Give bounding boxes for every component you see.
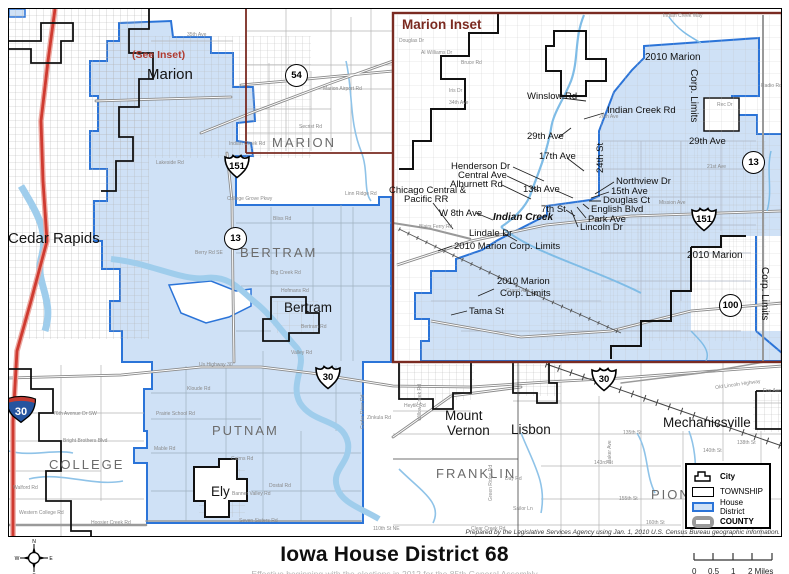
main-map-label-indian-creek-rd: Indian Creek Rd — [229, 142, 265, 147]
inset-label-mission-ave: Mission Ave — [659, 201, 686, 206]
main-map-label-prairie-school-rd: Prairie School Rd — [156, 412, 195, 417]
main-map-label-cedar-rapids: Cedar Rapids — [8, 231, 100, 247]
main-map-label-110th-st-ne: 110th St NE — [373, 527, 400, 532]
inset-label-29th-ave: 29th Ave — [527, 132, 564, 142]
main-map-label-mable-rd: Mable Rd — [154, 447, 175, 452]
main-map-label-bertram: Bertram — [284, 301, 332, 315]
inset-label-w-8th-ave: W 8th Ave — [439, 209, 482, 219]
main-map-label-college-grove-pkwy: College Grove Pkwy — [227, 197, 272, 202]
main-map-label-155th-st: 155th St — [619, 497, 638, 502]
main-map-label-hoosier-creek-rd: Hoosier Creek Rd — [91, 521, 131, 526]
main-map-label-dostal-rd: Dostal Rd — [269, 484, 291, 489]
main-map-label-marion: Marion — [147, 67, 193, 83]
main-map-label-ely: Ely — [211, 485, 230, 499]
main-map-label-linn-ridge-rd: Linn Ridge Rd — [345, 192, 377, 197]
inset-label-tama-st: Tama St — [469, 307, 504, 317]
main-map-label-western-college-rd: Western College Rd — [19, 511, 64, 516]
main-map-label-sailor-ln: Sailor Ln — [513, 507, 533, 512]
main-map-label-mount: Mount — [445, 409, 483, 423]
inset-label-grand-ave: Grand Ave — [506, 289, 530, 294]
inset-label-indian-creek-way: Indian Creek Way — [663, 14, 703, 19]
inset-label-34th-ave: 34th Ave — [449, 101, 468, 106]
inset-label-lincoln-dr: Lincoln Dr — [580, 223, 623, 233]
main-map-label-green-ridge-rd: Green Ridge Rd — [489, 465, 494, 501]
us-route-shield-30: 30 — [314, 364, 342, 395]
main-map-label-us-highway-30: Us Highway 30 — [199, 363, 233, 368]
scale-label-2-miles: 2 Miles — [748, 567, 773, 574]
main-map-label-135th-st: 135th St — [623, 431, 642, 436]
main-map-label-lakeside-rd: Lakeside Rd — [156, 161, 184, 166]
map-frame: (See Inset)MarionMARIONCedar RapidsBERTR… — [8, 8, 782, 537]
us-route-shield-151: 151 — [223, 153, 251, 184]
us-route-shield-30: 30 — [590, 366, 618, 397]
main-map-label-140th-st: 140th St — [703, 449, 722, 454]
main-map-label-secrist-rd: Secrist Rd — [299, 125, 322, 130]
house-district-swatch — [692, 502, 714, 512]
shield-number: 13 — [230, 233, 241, 244]
us-route-shield-shape: 30 — [590, 366, 618, 392]
us-route-shield-151: 151 — [690, 206, 718, 237]
interstate-route-shield-30: 30 — [8, 393, 38, 429]
legend: City TOWNSHIP House District COUNTY — [685, 463, 771, 529]
inset-label-13th-ave: 13th Ave — [523, 185, 560, 195]
main-map-label-college: COLLEGE — [49, 458, 124, 472]
circle-route-shield-13: 13 — [224, 227, 247, 250]
main-map-label-see-inset: (See Inset) — [132, 50, 185, 61]
map-page: (See Inset)MarionMARIONCedar RapidsBERTR… — [0, 0, 789, 574]
main-map-label-willow-creek-rd: Willow Creek Rd — [418, 384, 423, 421]
legend-item-county: COUNTY — [692, 514, 764, 529]
shield-number: 30 — [15, 406, 27, 418]
inset-label-24th-st: 24th St — [596, 143, 606, 173]
inset-label-26th-ave: 26th Ave — [599, 115, 618, 120]
state-route-shield-shape: 54 — [285, 64, 308, 87]
state-route-shield-shape: 100 — [719, 294, 742, 317]
legend-label-house-district: House District — [720, 498, 764, 516]
inset-label-pacific-rr: Pacific RR — [404, 195, 448, 205]
main-map-label-valley-rd: Valley Rd — [291, 351, 312, 356]
main-map-label-cedar-river-rd: Cedar River Rd — [361, 395, 366, 429]
main-map-label-fox-ave: Fox Ave — [763, 389, 781, 394]
legend-label-county: COUNTY — [720, 517, 754, 526]
inset-label-21st-ave: 21st Ave — [707, 165, 726, 170]
main-map-label-cairns-rd: Cairns Rd — [231, 457, 253, 462]
state-route-shield-shape: 13 — [224, 227, 247, 250]
circle-route-shield-100: 100 — [719, 294, 742, 317]
main-map-label-138th-st: 138th St — [737, 441, 756, 446]
inset-label-17th-ave: 17th Ave — [539, 152, 576, 162]
inset-label-indian-creek: Indian Creek — [493, 213, 553, 224]
main-map-label-bright-brothers-blvd: Bright Brothers Blvd — [63, 439, 107, 444]
inset-label-bruce-rd: Bruce Rd — [461, 61, 482, 66]
main-map-label-lisbon: Lisbon — [511, 423, 551, 437]
main-map-label-baker-ave: Baker Ave — [608, 440, 613, 463]
main-map-label-mechanicsville: Mechanicsville — [663, 416, 751, 430]
main-map-label-day-rd: Day Rd — [505, 477, 522, 482]
inset-label-corp-limits: Corp. Limits — [688, 69, 699, 122]
main-map-label-76th-avenue-dr-sw: 76th Avenue Dr SW — [53, 412, 97, 417]
legend-item-city: City — [692, 469, 764, 484]
main-map-label-walford-rd: Walford Rd — [13, 486, 38, 491]
county-swatch — [692, 516, 714, 528]
main-map-label-berry-rd-se: Berry Rd SE — [195, 251, 223, 256]
inset-label-blairs-ferry-rd: Blairs Ferry Rd — [419, 225, 452, 230]
inset-label-radio-rd: Radio Rd — [761, 84, 782, 89]
main-map-label-35th-ave: 35th Ave — [187, 33, 206, 38]
inset-label-29th-ave: 29th Ave — [689, 137, 726, 147]
shield-number: 100 — [723, 300, 739, 311]
main-map-label-vernon: Vernon — [447, 424, 490, 438]
state-route-shield-shape: 13 — [742, 151, 765, 174]
scale-bar: 0 0.5 1 2 Miles — [686, 548, 781, 574]
main-map-label-marion: MARION — [272, 136, 336, 150]
main-map-label-bertram-rd: Bertram Rd — [301, 325, 327, 330]
inset-label-rec-dr: Rec Dr — [717, 103, 733, 108]
shield-number: 151 — [696, 214, 713, 225]
map-canvas: (See Inset)MarionMARIONCedar RapidsBERTR… — [8, 8, 782, 537]
inset-label-winslow-rd: Winslow Rd — [527, 92, 577, 102]
us-route-shield-shape: 151 — [223, 153, 251, 179]
legend-label-city: City — [720, 472, 735, 481]
shield-number: 30 — [599, 374, 610, 385]
main-map-label-zinkula-rd: Zinkula Rd — [367, 416, 391, 421]
city-swatch-icon — [692, 470, 714, 483]
main-map-label-big-creek-rd: Big Creek Rd — [271, 271, 301, 276]
inset-label-al-williams-dr: Al Williams Dr — [421, 51, 452, 56]
main-map-label-banner-valley-rd: Banner Valley Rd — [232, 492, 271, 497]
scale-bar-ticks — [686, 548, 781, 566]
shield-number: 54 — [291, 70, 302, 81]
main-map-label-bliss-rd: Bliss Rd — [273, 217, 291, 222]
inset-label-2010-marion-corp-limits: 2010 Marion Corp. Limits — [454, 242, 560, 252]
interstate-shield-shape: 30 — [8, 393, 38, 424]
legend-label-township: TOWNSHIP — [720, 487, 763, 496]
us-route-shield-shape: 30 — [314, 364, 342, 390]
inset-label-lindale-dr: Lindale Dr — [469, 229, 512, 239]
inset-label-2010-marion: 2010 Marion — [497, 277, 550, 287]
shield-number: 13 — [748, 157, 759, 168]
inset-title: Marion Inset — [402, 17, 482, 32]
scale-label-0: 0 — [692, 567, 696, 574]
main-map-label-kloude-rd: Kloude Rd — [187, 387, 210, 392]
shield-number: 30 — [323, 372, 334, 383]
main-map-label-marion-airport-rd: Marion Airport Rd — [323, 87, 362, 92]
inset-label-douglas-dr: Douglas Dr — [399, 39, 424, 44]
main-map-label-putnam: PUTNAM — [212, 424, 279, 438]
inset-label-2010-marion: 2010 Marion — [687, 251, 743, 262]
inset-label-2010-marion: 2010 Marion — [645, 53, 701, 64]
legend-item-house-district: House District — [692, 499, 764, 514]
scale-label-05: 0.5 — [708, 567, 719, 574]
circle-route-shield-13: 13 — [742, 151, 765, 174]
scale-label-1: 1 — [731, 567, 735, 574]
map-subtitle: Effective beginning with the elections i… — [0, 569, 789, 574]
main-map-label-bertram: BERTRAM — [240, 246, 317, 260]
inset-label-iris-dr: Iris Dr — [449, 89, 462, 94]
inset-label-corp-limits: Corp. Limits — [759, 267, 770, 320]
us-route-shield-shape: 151 — [690, 206, 718, 232]
attribution-text: Prepared by the Legislative Services Age… — [466, 529, 780, 536]
main-map-label-hofmans-rd: Hofmans Rd — [281, 289, 309, 294]
circle-route-shield-54: 54 — [285, 64, 308, 87]
map-title: Iowa House District 68 — [0, 543, 789, 567]
township-swatch — [692, 487, 714, 497]
main-map-label-seven-sisters-rd: Seven Sisters Rd — [239, 519, 278, 524]
shield-number: 151 — [229, 161, 246, 172]
main-map-label-160th-st: 160th St — [646, 521, 665, 526]
